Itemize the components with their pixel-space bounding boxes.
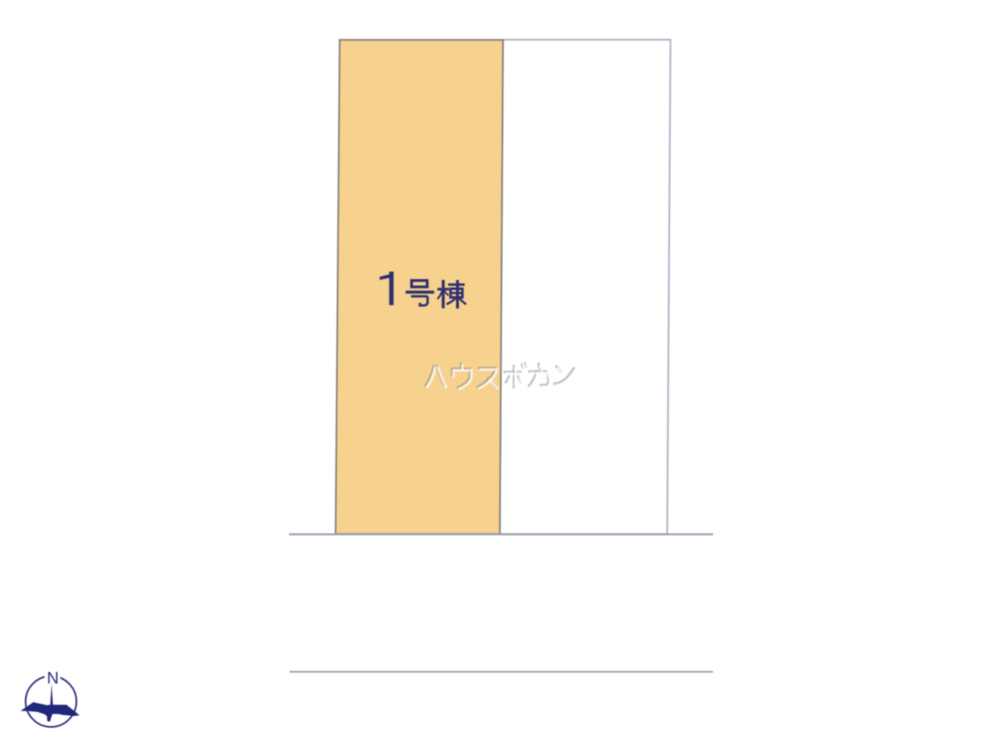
svg-text:N: N [47, 669, 59, 687]
